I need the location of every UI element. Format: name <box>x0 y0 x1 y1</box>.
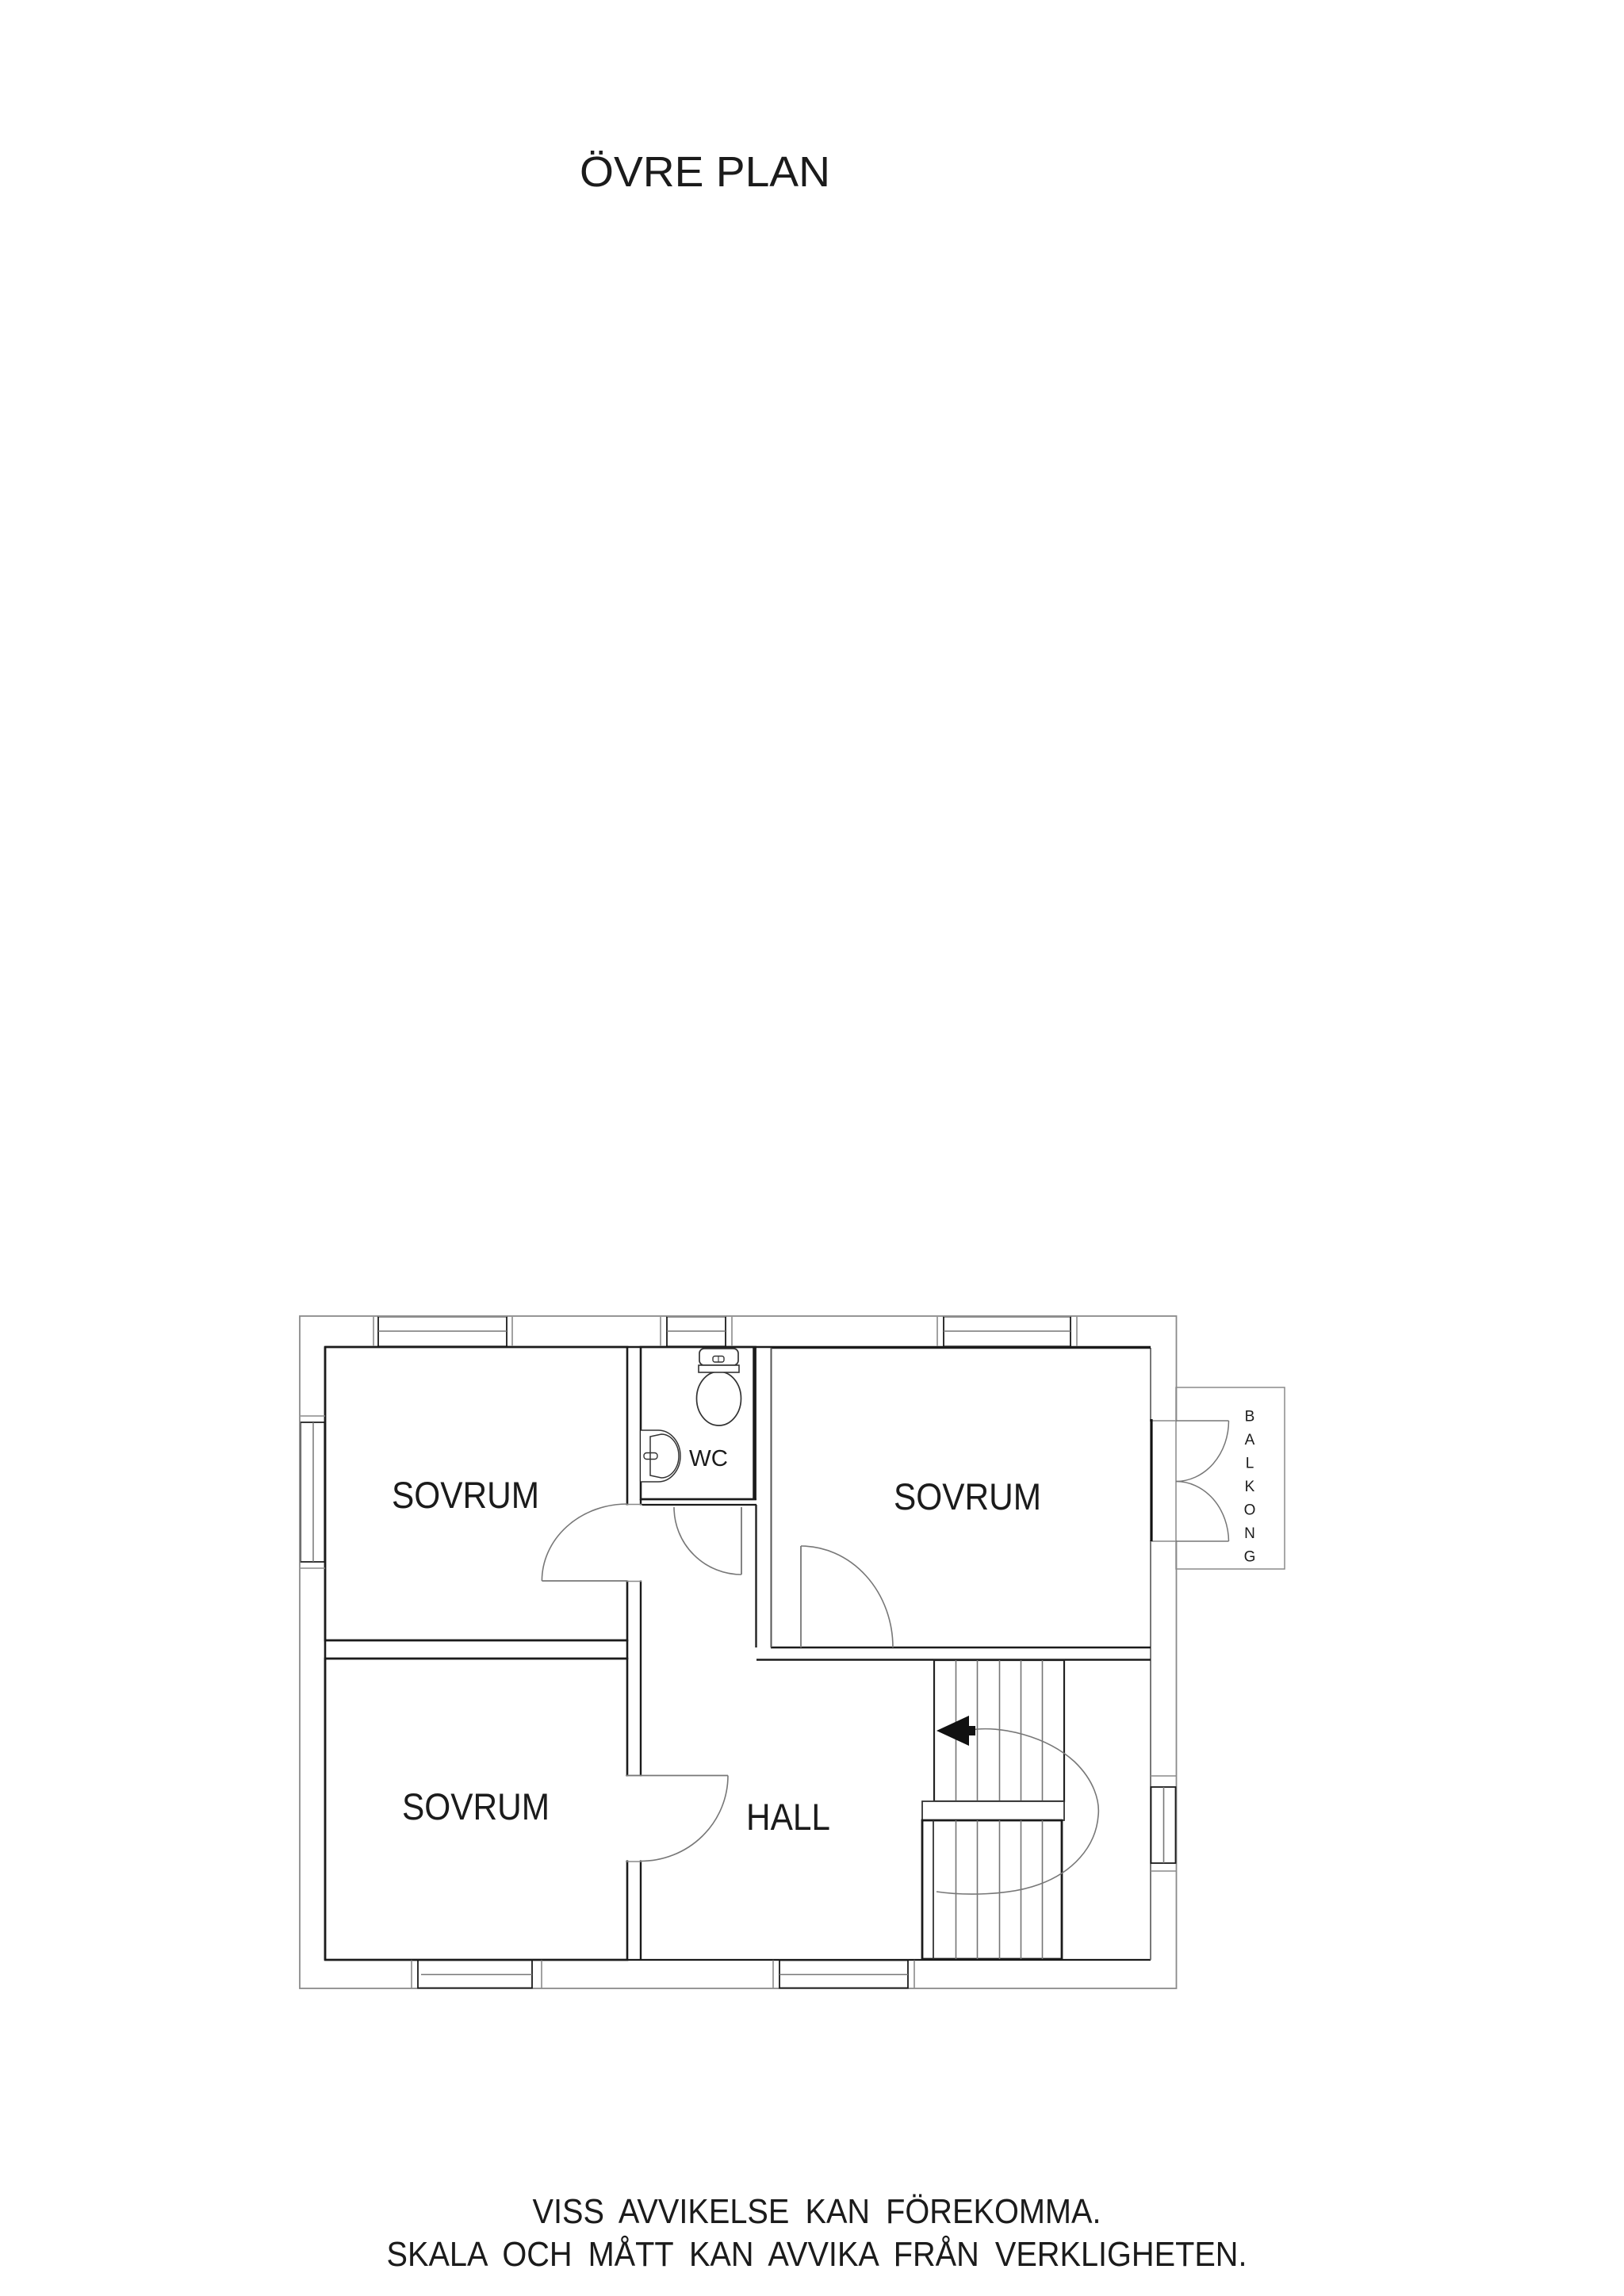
svg-text:SKALA OCH MÅTT KAN AVVIKA FRÅN: SKALA OCH MÅTT KAN AVVIKA FRÅN VERKLIGHE… <box>387 2235 1247 2274</box>
svg-text:SOVRUM: SOVRUM <box>392 1474 539 1516</box>
svg-text:L: L <box>1246 1456 1254 1472</box>
svg-text:B: B <box>1245 1409 1255 1425</box>
svg-text:K: K <box>1245 1479 1255 1495</box>
svg-text:SOVRUM: SOVRUM <box>402 1785 550 1827</box>
svg-text:WC: WC <box>689 1446 728 1471</box>
svg-text:N: N <box>1244 1525 1255 1542</box>
svg-text:HALL: HALL <box>746 1796 830 1838</box>
svg-text:A: A <box>1245 1432 1255 1448</box>
svg-text:ÖVRE PLAN: ÖVRE PLAN <box>580 148 830 196</box>
svg-text:G: G <box>1244 1549 1256 1566</box>
svg-text:SOVRUM: SOVRUM <box>894 1475 1041 1517</box>
svg-text:O: O <box>1244 1502 1256 1519</box>
svg-text:VISS AVVIKELSE KAN FÖREKOMMA.: VISS AVVIKELSE KAN FÖREKOMMA. <box>533 2192 1101 2231</box>
